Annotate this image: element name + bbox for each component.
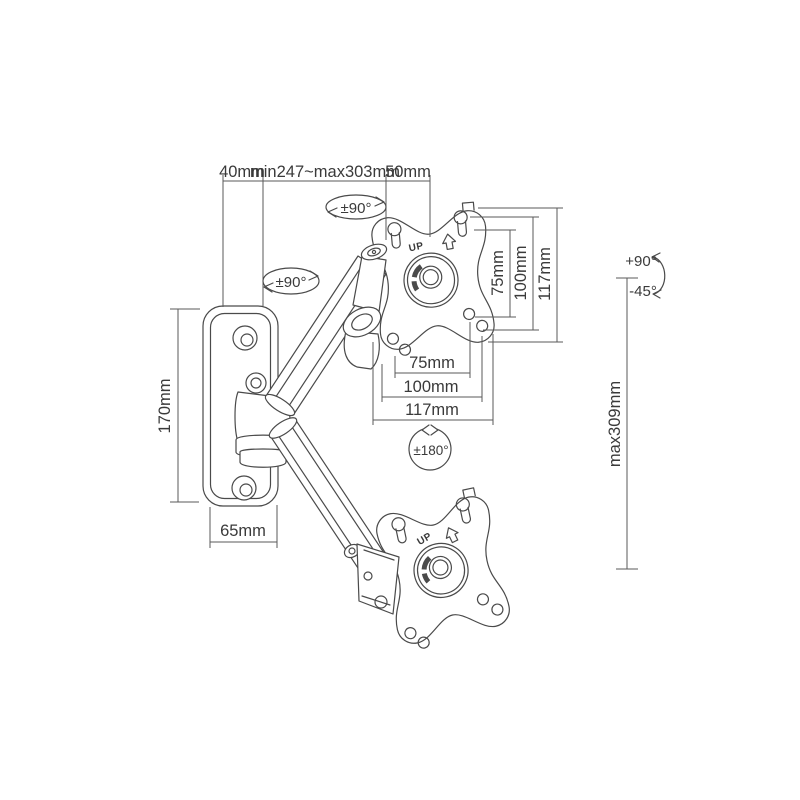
tilt-down-label: -45° — [629, 283, 657, 300]
rotation-180-annotation: ±180° — [409, 425, 451, 470]
diagram-page: UP UP — [0, 0, 800, 800]
mount-arm-diagram: UP UP — [0, 0, 800, 800]
swivel-elbow-annotation: ±90° — [263, 268, 319, 294]
dim-v100-label: 100mm — [512, 245, 530, 300]
dim-h117-label: 117mm — [405, 401, 459, 419]
dim-reach-label: min247~max303mm — [250, 163, 400, 181]
dim-h75-label: 75mm — [409, 354, 455, 372]
swivel-elbow-label: ±90° — [276, 274, 307, 291]
tilt-hinge-top — [353, 241, 389, 312]
dim-65-label: 65mm — [220, 522, 266, 540]
dim-max309-label: max309mm — [606, 381, 624, 467]
swivel-upper-annotation: ±90° — [326, 195, 386, 219]
swivel-upper-label: ±90° — [341, 200, 372, 217]
rotation-180-label: ±180° — [413, 443, 448, 458]
tilt-annotation: +90° -45° — [625, 253, 664, 300]
vesa-plate-top: UP — [370, 201, 496, 357]
arm-pivot — [246, 373, 266, 393]
dim-v117-label: 117mm — [536, 247, 554, 301]
wall-screw-hole-top — [233, 326, 257, 350]
dim-v75-label: 75mm — [489, 250, 507, 296]
dim-50-label: 50mm — [385, 163, 431, 181]
dim-170-label: 170mm — [156, 378, 174, 433]
dim-h100-label: 100mm — [403, 378, 458, 396]
wall-screw-hole-bottom — [232, 476, 256, 500]
tilt-up-label: +90° — [625, 253, 656, 270]
